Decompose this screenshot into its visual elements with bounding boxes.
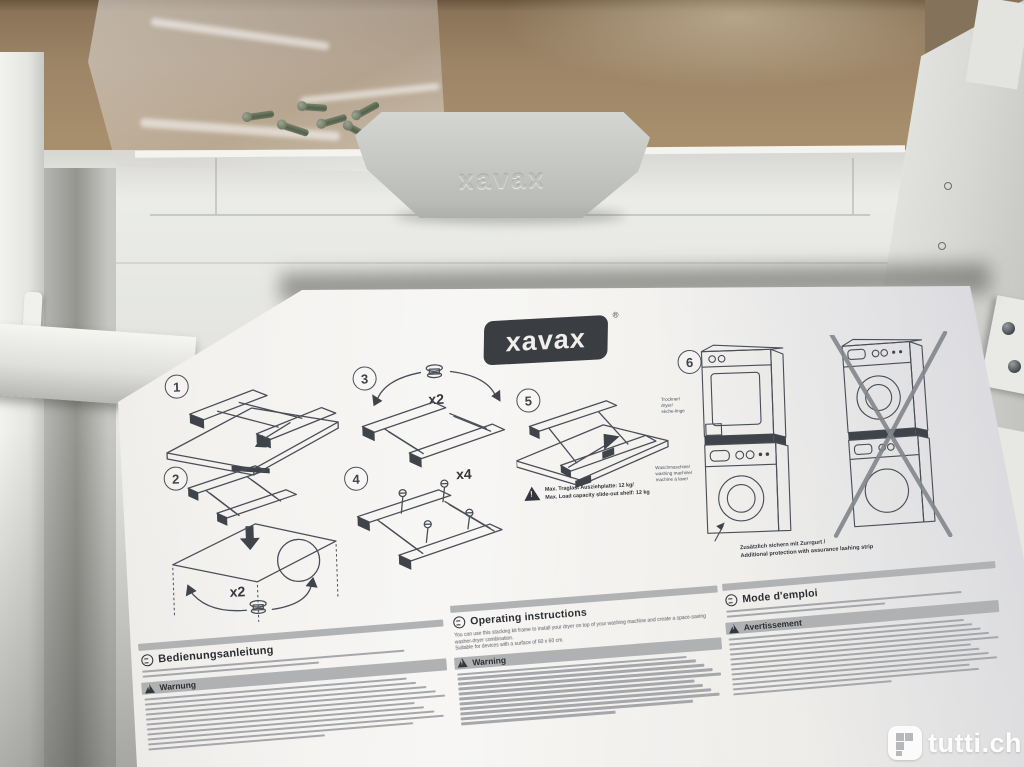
warning-title: Avertissement — [743, 618, 802, 633]
handle-embossed-logo: xavax — [355, 161, 650, 197]
warning-triangle-icon — [524, 486, 541, 501]
warning-title: Warning — [472, 654, 506, 667]
step-4-drawing: x4 — [340, 459, 530, 603]
photo-of-xavax-stacking-kit: xavax xavax ® 1 2 — [0, 0, 1024, 767]
rivet-head — [1008, 360, 1021, 373]
cardboard-highlight — [500, 0, 930, 90]
qty-label: x2 — [229, 583, 245, 600]
rivet-hole — [938, 242, 946, 250]
rivet-head — [1002, 322, 1015, 335]
registered-trademark: ® — [612, 310, 618, 319]
washer-label: Waschmaschine/ washing machine/ machine … — [655, 464, 692, 484]
dryer-label: Trockner/ dryer/ sèche-linge — [661, 396, 685, 415]
panel-seam — [0, 262, 1024, 264]
watermark-text: tutti.ch — [928, 728, 1022, 759]
left-bottom-shade — [0, 430, 140, 767]
qty-label: x2 — [428, 391, 444, 408]
step-number: 6 — [677, 350, 702, 375]
section-title: Mode d'emploi — [742, 587, 818, 605]
warning-triangle-icon — [728, 623, 739, 633]
section-english: Operating instructions You can use this … — [450, 585, 726, 725]
section-french: Mode d'emploi Avertissement — [722, 561, 1004, 696]
qty-label: x4 — [456, 466, 472, 483]
booklet-icon — [141, 654, 154, 667]
booklet-icon — [725, 594, 738, 607]
tutti-logo-icon — [888, 726, 922, 760]
panel-seam — [215, 158, 217, 214]
warning-triangle-icon — [457, 658, 468, 668]
warning-title: Warnung — [159, 680, 196, 693]
booklet-icon — [453, 616, 466, 629]
step-2-diagram: 2 x2 — [157, 459, 348, 627]
correct-stack — [701, 343, 791, 541]
tutti-watermark: tutti.ch — [888, 720, 1024, 766]
warning-triangle-icon — [144, 683, 155, 693]
stacking-drawing — [699, 331, 958, 546]
rivet-hole — [944, 182, 952, 190]
xavax-logo-text: xavax — [506, 323, 587, 358]
panel-seam — [852, 158, 854, 214]
step-6-diagram: 6 Trockner/ dryer/ sèche-linge Waschmasc… — [651, 331, 959, 585]
step-4-diagram: 4 x4 — [340, 459, 530, 603]
foot-icon — [426, 365, 442, 378]
